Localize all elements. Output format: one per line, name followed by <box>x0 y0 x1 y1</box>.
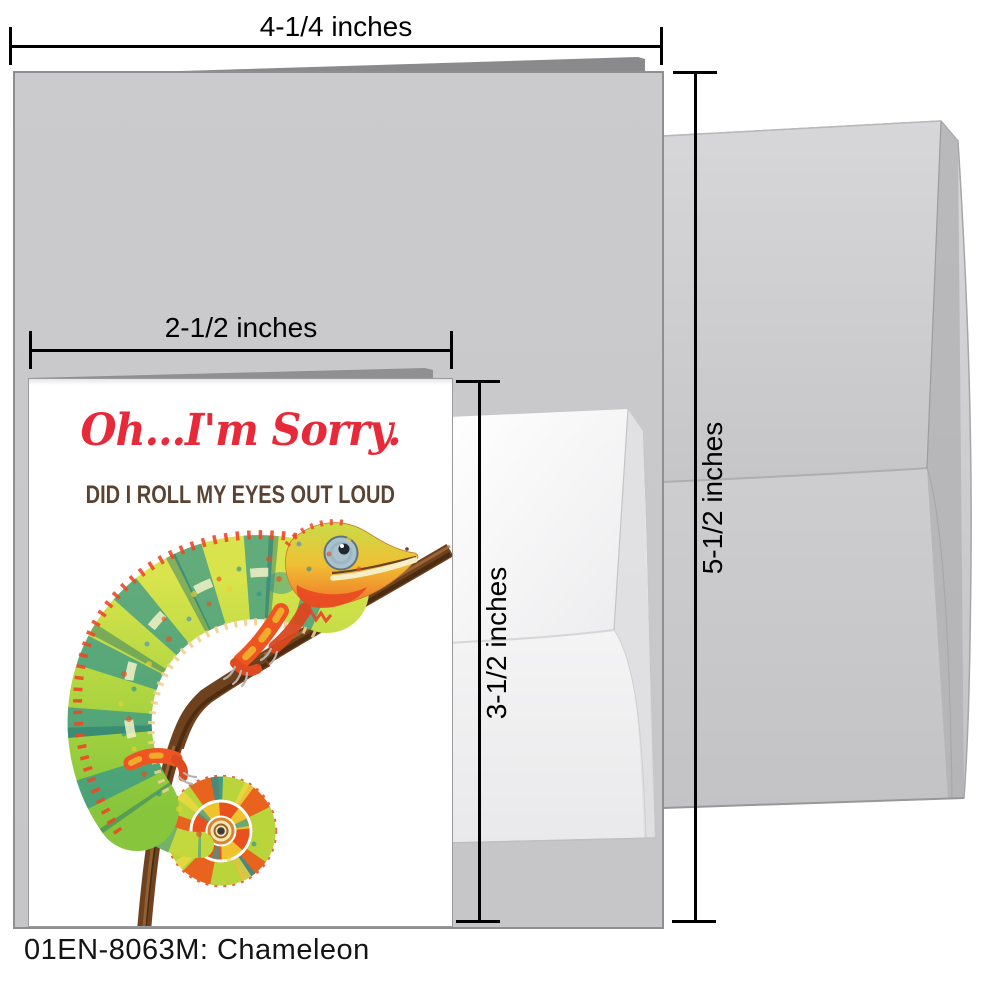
measure-line <box>10 45 662 48</box>
large-card-fold <box>16 57 645 79</box>
nostril <box>405 547 409 551</box>
measure-line <box>30 349 452 352</box>
measure-tick <box>29 331 32 369</box>
card-subtitle: DID I ROLL MY EYES OUT LOUD <box>29 481 452 510</box>
measure-label: 4-1/4 inches <box>10 12 662 42</box>
measure-label: 2-1/2 inches <box>30 313 452 343</box>
measure-tick <box>456 380 500 383</box>
small-greeting-card: Oh...I'm Sorry. DID I ROLL MY EYES OUT L… <box>28 378 453 927</box>
measure-label: 3-1/2 inches <box>482 533 512 753</box>
measure-tick <box>673 71 717 74</box>
product-caption: 01EN-8063M: Chameleon <box>24 934 370 967</box>
measure-tick <box>672 920 716 923</box>
measure-tick <box>9 27 12 65</box>
chameleon-artwork <box>29 379 453 927</box>
product-mockup: Oh...I'm Sorry. DID I ROLL MY EYES OUT L… <box>0 0 984 984</box>
measure-label: 5-1/2 inches <box>698 388 728 608</box>
measure-tick <box>456 920 500 923</box>
measure-tick <box>660 27 663 65</box>
measure-tick <box>450 331 453 369</box>
card-title: Oh...I'm Sorry. <box>42 407 440 455</box>
